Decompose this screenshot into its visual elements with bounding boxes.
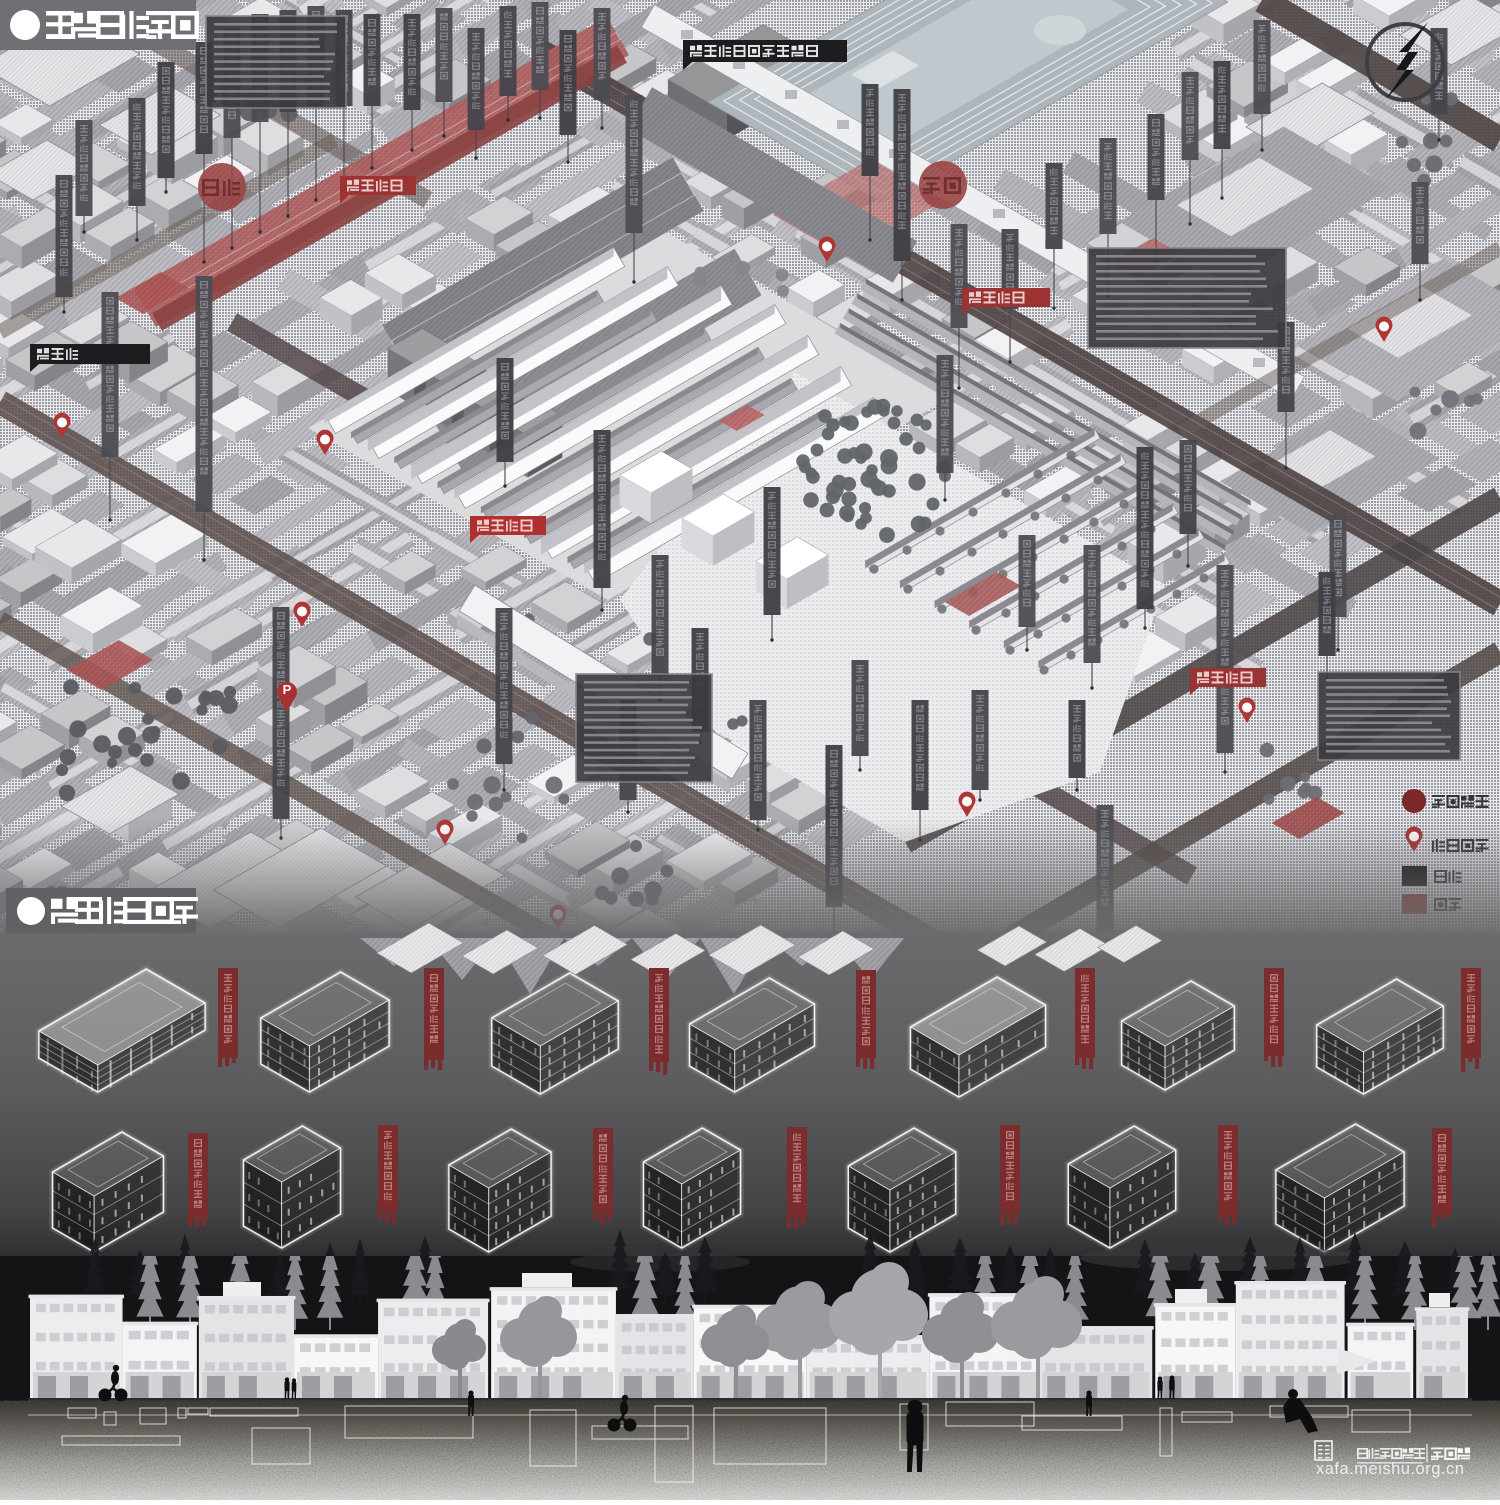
svg-text:P: P [283,682,292,697]
svg-text:xafa.meishu.org.cn: xafa.meishu.org.cn [1316,1460,1464,1478]
